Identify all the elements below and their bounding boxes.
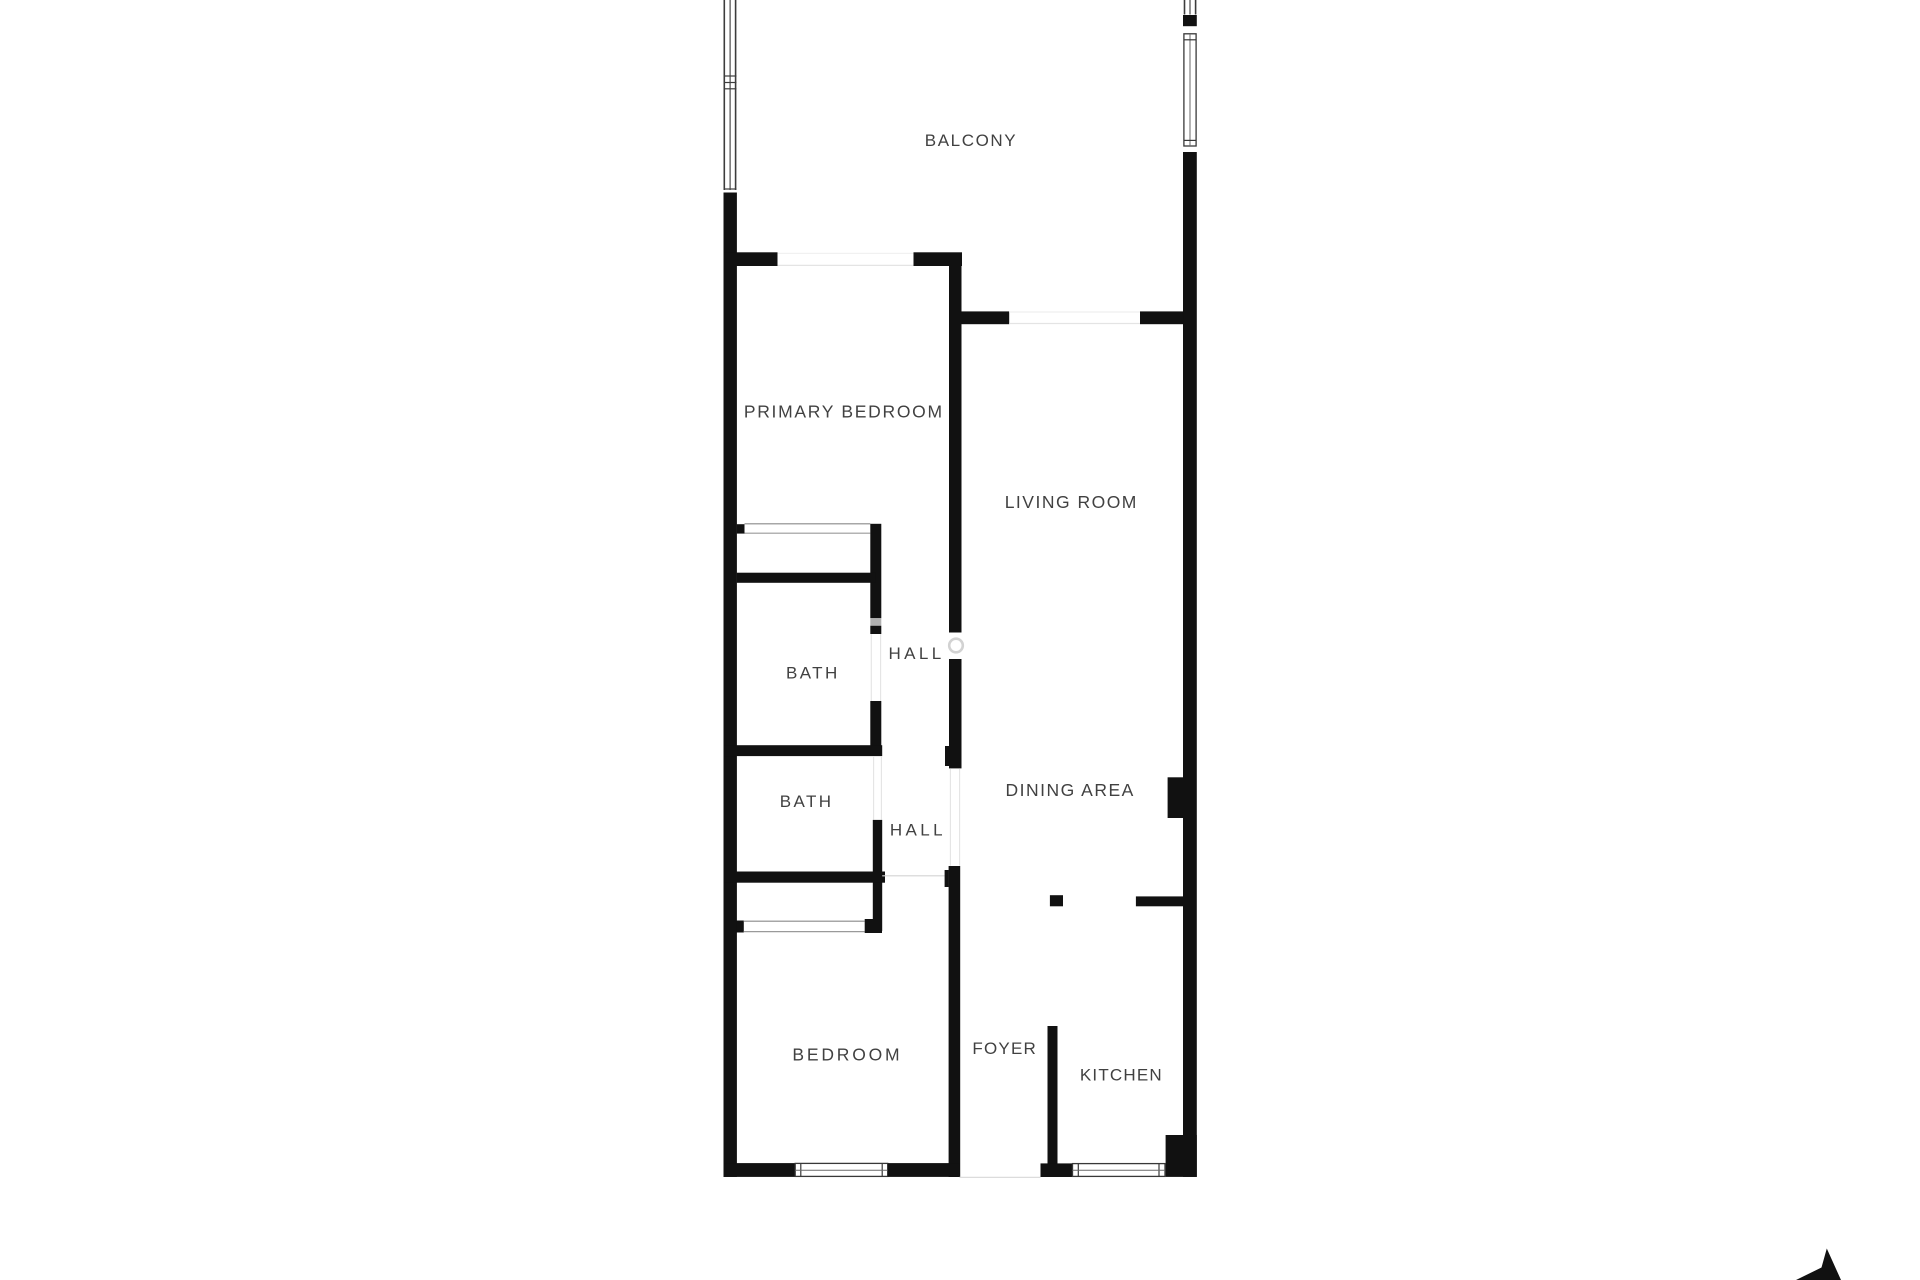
svg-text:BEDROOM: BEDROOM (792, 1044, 902, 1064)
svg-text:BALCONY: BALCONY (925, 131, 1017, 150)
svg-text:HALL: HALL (890, 821, 946, 840)
svg-text:BATH: BATH (780, 792, 834, 811)
svg-text:LIVING ROOM: LIVING ROOM (1005, 492, 1138, 512)
svg-text:BATH: BATH (786, 664, 840, 683)
svg-text:HALL: HALL (888, 644, 944, 663)
svg-text:DINING AREA: DINING AREA (1006, 780, 1135, 800)
svg-text:KITCHEN: KITCHEN (1080, 1065, 1163, 1084)
svg-text:PRIMARY BEDROOM: PRIMARY BEDROOM (744, 402, 944, 422)
svg-text:FOYER: FOYER (972, 1039, 1037, 1058)
